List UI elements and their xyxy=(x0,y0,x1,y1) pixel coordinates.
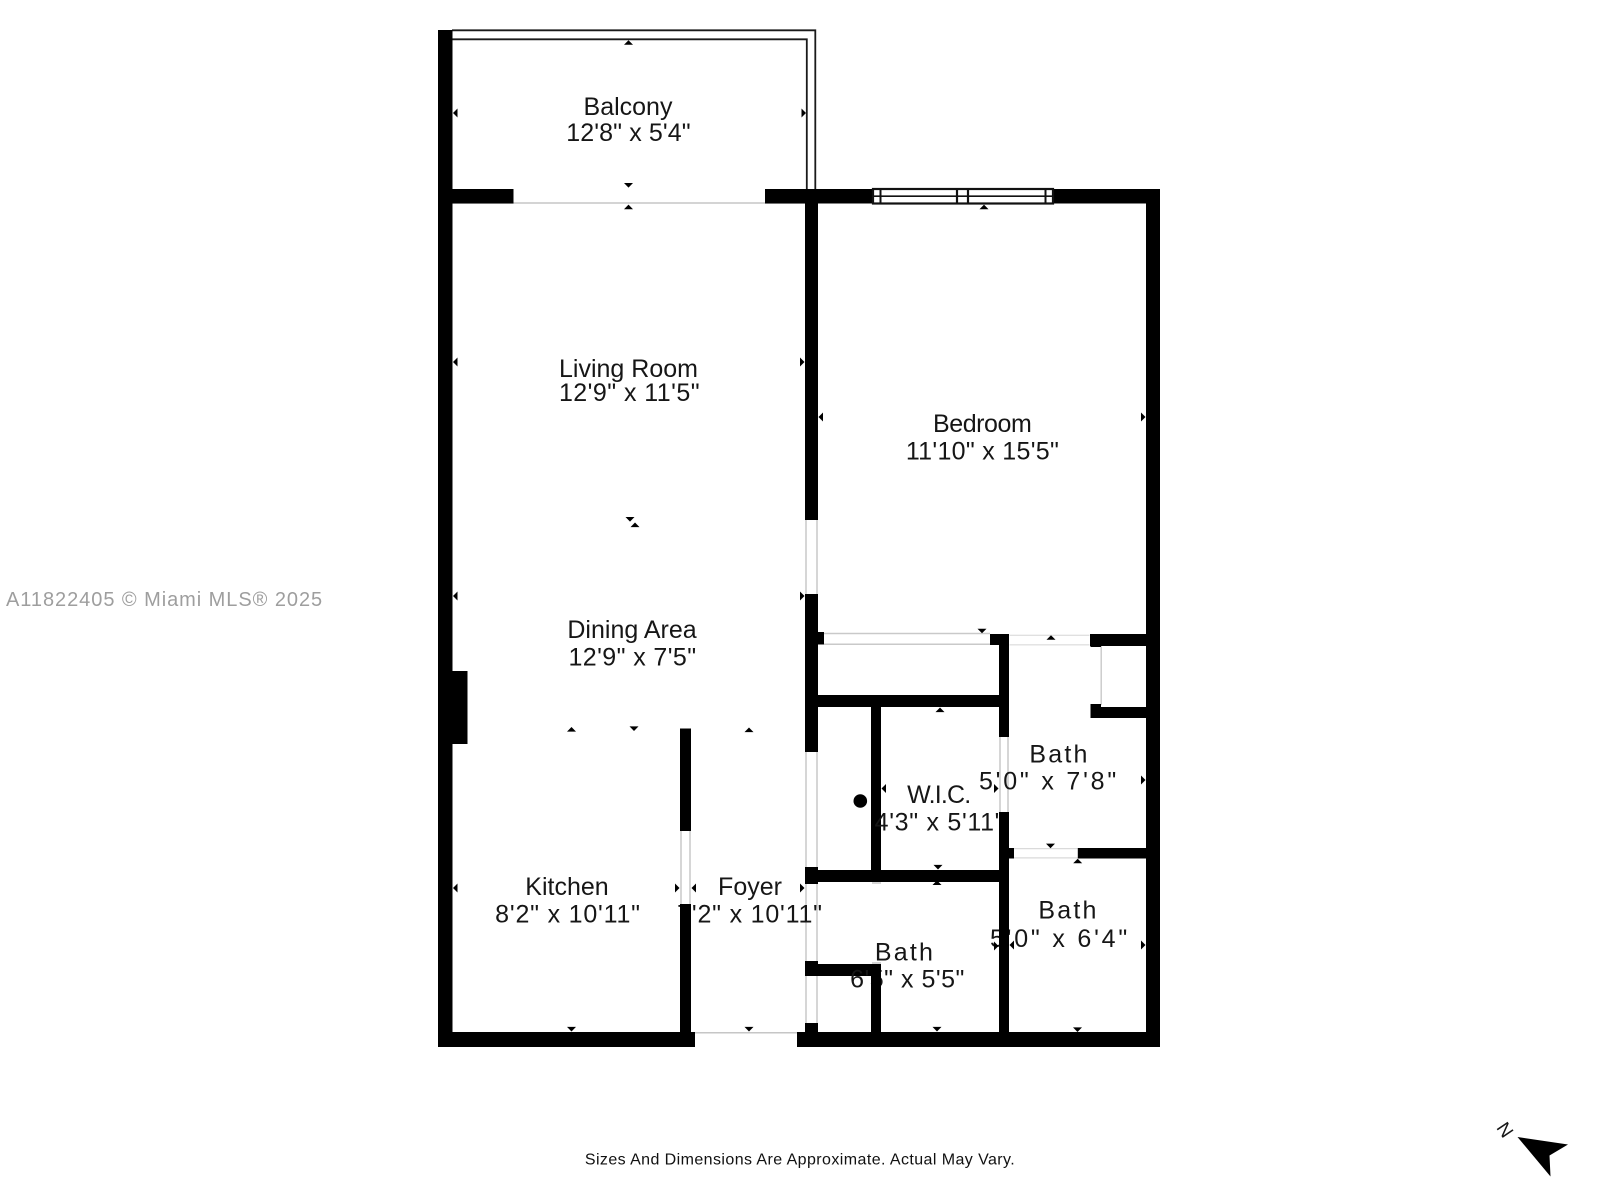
svg-text:Bedroom: Bedroom xyxy=(933,410,1031,438)
svg-text:5'0" x 7'8": 5'0" x 7'8" xyxy=(979,768,1119,796)
svg-text:11'10" x 15'5": 11'10" x 15'5" xyxy=(906,438,1059,466)
svg-text:Kitchen: Kitchen xyxy=(525,873,608,901)
svg-text:8'2" x 10'11": 8'2" x 10'11" xyxy=(495,901,641,929)
svg-text:12'9" x 7'5": 12'9" x 7'5" xyxy=(568,644,696,672)
svg-text:Bath: Bath xyxy=(1029,741,1089,769)
svg-text:4'3" x 5'11": 4'3" x 5'11" xyxy=(875,809,1005,837)
svg-text:A11822405 © Miami MLS® 2025: A11822405 © Miami MLS® 2025 xyxy=(6,589,323,611)
svg-text:Bath: Bath xyxy=(1038,897,1098,925)
svg-text:12'8" x 5'4": 12'8" x 5'4" xyxy=(566,119,690,147)
svg-text:6'5" x 5'5": 6'5" x 5'5" xyxy=(850,966,965,994)
svg-text:W.I.C.: W.I.C. xyxy=(907,781,970,809)
svg-text:Foyer: Foyer xyxy=(718,873,782,901)
svg-text:12'9" x 11'5": 12'9" x 11'5" xyxy=(559,379,700,407)
svg-text:7'2" x 10'11": 7'2" x 10'11" xyxy=(677,901,823,929)
svg-text:Bath: Bath xyxy=(875,939,935,967)
svg-text:5'0" x 6'4": 5'0" x 6'4" xyxy=(990,925,1130,953)
svg-text:Sizes And Dimensions Are Appro: Sizes And Dimensions Are Approximate. Ac… xyxy=(585,1152,1015,1169)
svg-text:Balcony: Balcony xyxy=(584,93,673,121)
svg-text:Dining Area: Dining Area xyxy=(567,616,696,644)
